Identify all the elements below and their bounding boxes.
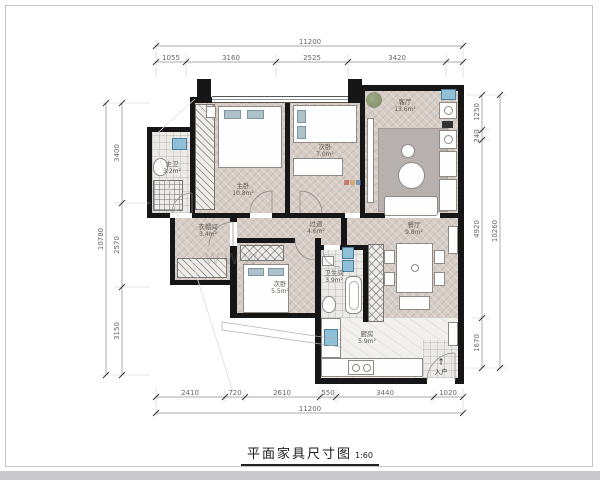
dim-label: 3440 bbox=[376, 389, 394, 397]
room-label-bath2: 卫生间3.9m² bbox=[324, 269, 344, 285]
room-name: 卫生间 bbox=[324, 269, 344, 277]
dim-label: 11200 bbox=[299, 38, 321, 46]
room-label-study: 次卧7.0m² bbox=[316, 143, 334, 159]
room-name: 过道 bbox=[307, 220, 325, 228]
room-name: 衣帽间 bbox=[198, 223, 218, 231]
room-name: 厨房 bbox=[358, 330, 376, 338]
dim-label: 1020 bbox=[439, 389, 457, 397]
room-label-closet: 衣帽间3.4m² bbox=[198, 223, 218, 239]
room-label-master-bedroom: 主卧10.8m² bbox=[232, 182, 254, 198]
dimension-layer: 1055 3160 2525 3420 11200 2410 720 2610 … bbox=[0, 0, 600, 480]
room-name: 主卫 bbox=[163, 160, 181, 168]
dim-label: 11200 bbox=[299, 405, 321, 413]
room-label-master-bath: 主卫3.2m² bbox=[163, 160, 181, 176]
title-scale: 1:60 bbox=[355, 451, 373, 460]
room-area: 3.2m² bbox=[163, 168, 181, 176]
page-shading-lines bbox=[153, 99, 233, 392]
logo-block bbox=[356, 180, 361, 185]
watermark-text: WWW bbox=[205, 250, 262, 268]
room-area: 3.4m² bbox=[198, 231, 218, 239]
room-area: 5.9m² bbox=[358, 338, 376, 346]
dim-label: 240 bbox=[473, 129, 481, 142]
logo-block bbox=[350, 180, 355, 185]
dim-label: 2610 bbox=[273, 389, 291, 397]
watermark-logo bbox=[344, 170, 362, 189]
dim-label: 1055 bbox=[162, 54, 180, 62]
dim-label: 3400 bbox=[113, 144, 121, 162]
dim-label: 550 bbox=[321, 389, 334, 397]
dimension-labels: 1055 3160 2525 3420 11200 2410 720 2610 … bbox=[97, 38, 499, 413]
drawing-title: 平面家具尺寸图1:60 bbox=[241, 443, 379, 466]
room-area: 10.8m² bbox=[232, 190, 254, 198]
dim-label: 2525 bbox=[303, 54, 321, 62]
room-area: 4.6m² bbox=[307, 228, 325, 236]
room-name: 餐厅 bbox=[405, 221, 423, 229]
dim-label: 1670 bbox=[473, 334, 481, 352]
room-label-kitchen: 厨房5.9m² bbox=[358, 330, 376, 346]
entrance-label: 入户 bbox=[435, 368, 448, 376]
room-area: 5.5m² bbox=[271, 288, 289, 296]
logo-block bbox=[344, 180, 349, 185]
dim-label: 3160 bbox=[222, 54, 240, 62]
dim-label: 720 bbox=[228, 389, 241, 397]
terrace-edge-lines bbox=[222, 322, 342, 347]
room-area: 13.6m² bbox=[394, 106, 416, 114]
dim-label: 10260 bbox=[491, 220, 499, 242]
dim-label: 4920 bbox=[473, 220, 481, 238]
dim-label: 2410 bbox=[181, 389, 199, 397]
room-area: 7.0m² bbox=[316, 151, 334, 159]
room-name: 次卧 bbox=[271, 280, 289, 288]
room-area: 3.9m² bbox=[324, 277, 344, 285]
entrance-marker: ↑ 入户 bbox=[435, 358, 448, 377]
room-label-bedroom2: 次卧5.5m² bbox=[271, 280, 289, 296]
room-label-dining: 餐厅9.8m² bbox=[405, 221, 423, 237]
room-label-hallway: 过道4.6m² bbox=[307, 220, 325, 236]
dim-label: 1250 bbox=[473, 103, 481, 121]
room-name: 客厅 bbox=[394, 98, 416, 106]
room-name: 主卧 bbox=[232, 182, 254, 190]
dim-label: 3420 bbox=[388, 54, 406, 62]
room-label-living: 客厅13.6m² bbox=[394, 98, 416, 114]
room-area: 9.8m² bbox=[405, 229, 423, 237]
dim-label: 3150 bbox=[113, 322, 121, 340]
dim-label: 2570 bbox=[113, 236, 121, 254]
dim-label: 10780 bbox=[97, 228, 105, 250]
room-name: 次卧 bbox=[316, 143, 334, 151]
title-text: 平面家具尺寸图 bbox=[247, 447, 352, 462]
